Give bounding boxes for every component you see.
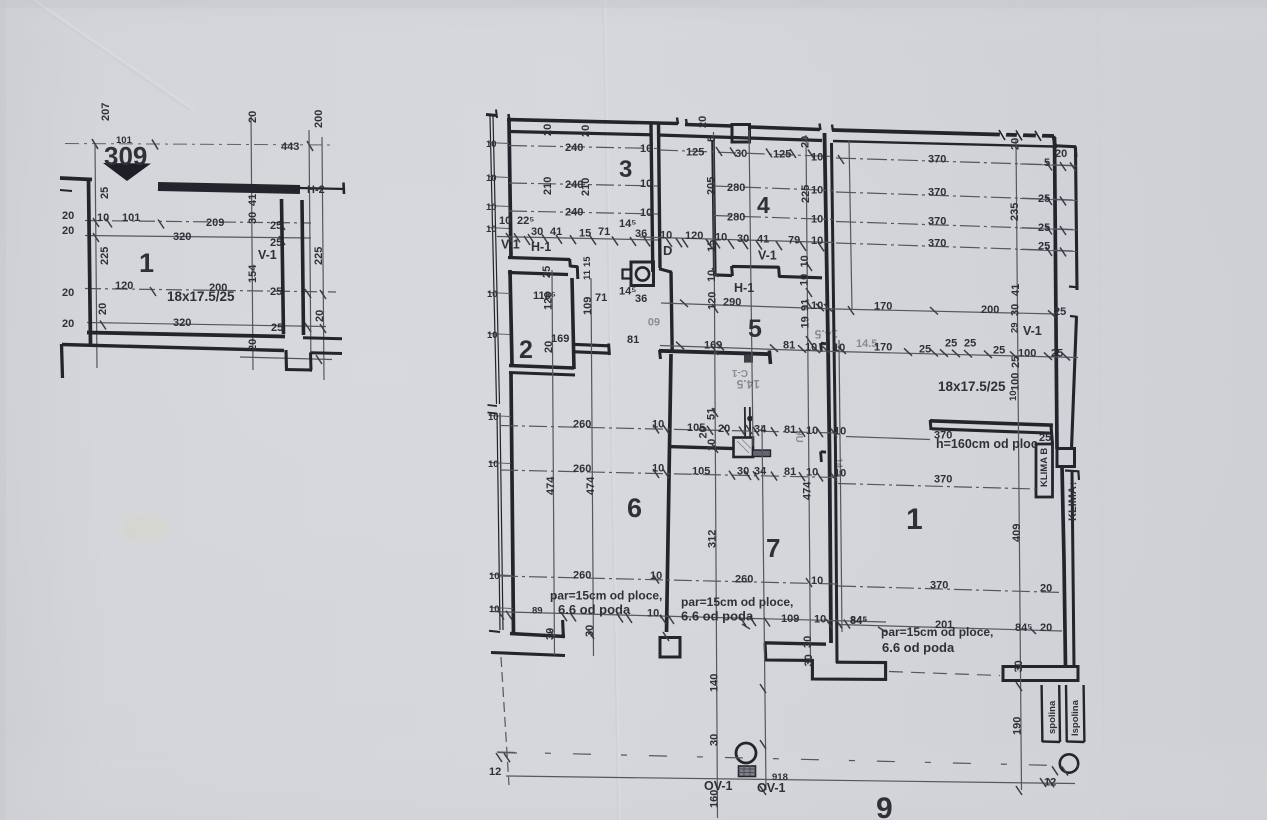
svg-text:18x17.5/25: 18x17.5/25 <box>167 289 235 304</box>
svg-text:14.5: 14.5 <box>814 327 838 341</box>
svg-text:36: 36 <box>635 228 647 240</box>
svg-text:170: 170 <box>874 301 892 313</box>
svg-text:25: 25 <box>993 345 1005 357</box>
svg-text:10,: 10, <box>647 608 662 620</box>
svg-text:280: 280 <box>727 182 745 194</box>
svg-text:10: 10 <box>834 426 846 438</box>
svg-text:spolina: spolina <box>1047 700 1058 734</box>
svg-text:370: 370 <box>928 187 946 199</box>
svg-text:10: 10 <box>811 214 823 226</box>
svg-text:15: 15 <box>579 228 591 240</box>
svg-text:10: 10 <box>486 173 497 184</box>
svg-text:10: 10 <box>652 419 664 431</box>
svg-text:51: 51 <box>706 408 718 420</box>
svg-text:par=15cm od ploce,: par=15cm od ploce, <box>681 595 793 609</box>
svg-text:30: 30 <box>531 226 543 238</box>
svg-text:5: 5 <box>1044 157 1050 169</box>
svg-text:205: 205 <box>706 177 718 195</box>
svg-text:20: 20 <box>698 426 710 438</box>
svg-text:120: 120 <box>115 280 133 292</box>
svg-text:200: 200 <box>981 304 999 316</box>
svg-text:225: 225 <box>313 247 325 265</box>
svg-text:25: 25 <box>1038 222 1050 234</box>
svg-text:240: 240 <box>565 207 583 219</box>
svg-text:20: 20 <box>697 116 709 128</box>
svg-text:25: 25 <box>271 322 283 334</box>
svg-text:370: 370 <box>928 154 946 166</box>
svg-text:20: 20 <box>314 310 326 322</box>
svg-text:105: 105 <box>692 466 710 478</box>
svg-text:10: 10 <box>833 342 845 354</box>
svg-text:34: 34 <box>754 466 767 478</box>
svg-text:312: 312 <box>707 530 719 548</box>
svg-text:320: 320 <box>173 317 191 329</box>
svg-text:474: 474 <box>545 476 557 495</box>
svg-text:370: 370 <box>928 238 946 250</box>
svg-text:25: 25 <box>1051 348 1063 360</box>
svg-text:125: 125 <box>686 147 704 159</box>
svg-text:41: 41 <box>550 226 562 238</box>
svg-text:210: 210 <box>580 178 592 196</box>
svg-text:V-1: V-1 <box>258 248 277 262</box>
svg-text:25: 25 <box>1039 432 1051 444</box>
svg-text:81: 81 <box>784 466 796 478</box>
svg-text:225: 225 <box>800 185 812 203</box>
svg-text:91: 91 <box>800 299 812 311</box>
svg-text:100: 100 <box>1010 373 1022 391</box>
svg-text:C-1: C-1 <box>731 367 748 378</box>
svg-text:190: 190 <box>1012 717 1024 735</box>
svg-text:280: 280 <box>727 212 745 224</box>
svg-text:14.5: 14.5 <box>736 377 760 391</box>
svg-text:443: 443 <box>281 141 299 153</box>
svg-text:30: 30 <box>709 734 721 746</box>
svg-text:10: 10 <box>640 143 652 155</box>
svg-text:10: 10 <box>487 289 498 300</box>
svg-text:10: 10 <box>489 604 500 615</box>
svg-text:1: 1 <box>139 248 154 278</box>
svg-text:20: 20 <box>580 125 592 137</box>
svg-text:10: 10 <box>488 459 499 470</box>
svg-text:20: 20 <box>62 287 74 299</box>
svg-text:6: 6 <box>627 493 642 523</box>
svg-text:109: 109 <box>781 613 799 625</box>
svg-text:25: 25 <box>99 187 111 199</box>
svg-text:3: 3 <box>619 156 632 183</box>
svg-text:15: 15 <box>706 240 718 252</box>
svg-text:207: 207 <box>100 103 112 121</box>
svg-text:10: 10 <box>640 207 652 219</box>
svg-text:20: 20 <box>1040 583 1052 595</box>
svg-text:30: 30 <box>247 212 259 224</box>
svg-text:KLIMA↓: KLIMA↓ <box>1067 481 1079 521</box>
svg-text:2: 2 <box>519 336 533 364</box>
svg-text:120: 120 <box>707 292 719 310</box>
svg-text:84⁵: 84⁵ <box>1015 622 1032 634</box>
svg-text:15: 15 <box>582 256 593 267</box>
svg-text:10: 10 <box>650 570 662 582</box>
svg-text:20: 20 <box>247 111 259 123</box>
svg-text:10: 10 <box>487 330 498 341</box>
svg-text:H-1: H-1 <box>734 281 754 295</box>
svg-text:10: 10 <box>811 185 823 197</box>
svg-text:10: 10 <box>1008 390 1019 401</box>
svg-text:370: 370 <box>934 474 952 486</box>
svg-text:81: 81 <box>627 334 639 346</box>
svg-text:10: 10 <box>486 202 497 213</box>
svg-text:12: 12 <box>1044 777 1056 789</box>
svg-text:260: 260 <box>573 419 591 431</box>
svg-text:V-1: V-1 <box>758 249 777 263</box>
svg-text:20: 20 <box>800 136 812 148</box>
svg-text:OV-1: OV-1 <box>704 779 733 793</box>
svg-text:11: 11 <box>582 269 593 280</box>
svg-text:10: 10 <box>660 230 672 242</box>
svg-text:H-2: H-2 <box>307 184 325 196</box>
svg-text:20: 20 <box>97 303 109 315</box>
svg-text:240: 240 <box>565 142 583 154</box>
svg-text:41: 41 <box>247 194 259 206</box>
svg-text:10: 10 <box>486 224 497 235</box>
svg-text:101: 101 <box>122 212 140 224</box>
svg-text:474: 474 <box>802 481 814 500</box>
svg-text:125: 125 <box>773 149 791 161</box>
svg-text:10: 10 <box>814 614 826 626</box>
svg-text:84⁵: 84⁵ <box>850 615 867 627</box>
svg-text:71: 71 <box>595 292 607 304</box>
svg-text:KLIMA B: KLIMA B <box>1039 448 1050 487</box>
svg-text:200: 200 <box>313 110 325 128</box>
svg-text:260: 260 <box>573 570 591 582</box>
svg-text:30: 30 <box>584 625 596 637</box>
svg-text:71: 71 <box>598 226 610 238</box>
svg-text:10: 10 <box>799 274 811 286</box>
svg-text:41: 41 <box>1010 284 1022 296</box>
svg-text:409: 409 <box>1011 524 1023 542</box>
svg-text:19: 19 <box>800 316 812 328</box>
svg-text:25: 25 <box>1038 241 1050 253</box>
svg-text:10: 10 <box>805 342 817 354</box>
svg-text:34: 34 <box>754 424 767 436</box>
svg-text:25: 25 <box>1010 356 1022 368</box>
svg-text:30: 30 <box>735 148 747 160</box>
svg-text:20: 20 <box>1040 622 1052 634</box>
svg-text:14⁵: 14⁵ <box>619 218 636 230</box>
svg-text:OV-1: OV-1 <box>757 781 786 795</box>
svg-text:5: 5 <box>748 315 762 343</box>
svg-text:10: 10 <box>811 300 823 312</box>
svg-text:12: 12 <box>489 766 501 778</box>
svg-text:D: D <box>663 243 672 258</box>
svg-text:169: 169 <box>704 340 722 352</box>
svg-text:81: 81 <box>783 340 795 352</box>
svg-text:10: 10 <box>806 425 818 437</box>
svg-text:20: 20 <box>718 423 730 435</box>
svg-text:14⁵: 14⁵ <box>619 286 636 298</box>
svg-text:10: 10 <box>499 215 511 227</box>
svg-text:10: 10 <box>488 412 499 423</box>
svg-text:235: 235 <box>1009 203 1021 221</box>
svg-text:25: 25 <box>270 220 282 232</box>
svg-text:320: 320 <box>173 231 191 243</box>
svg-text:10: 10 <box>811 152 823 164</box>
svg-text:10: 10 <box>652 463 664 475</box>
svg-text:25: 25 <box>945 338 957 350</box>
svg-text:30: 30 <box>737 466 749 478</box>
svg-text:25: 25 <box>919 344 931 356</box>
svg-text:225: 225 <box>99 247 111 265</box>
svg-text:10: 10 <box>799 255 811 267</box>
svg-text:10: 10 <box>811 575 823 587</box>
svg-text:30: 30 <box>737 233 749 245</box>
svg-text:20: 20 <box>62 225 74 237</box>
svg-text:260: 260 <box>573 463 591 475</box>
svg-text:109: 109 <box>582 297 594 315</box>
svg-text:30: 30 <box>803 654 815 666</box>
svg-text:par=15cm od ploce,: par=15cm od ploce, <box>881 625 993 639</box>
svg-text:25: 25 <box>541 266 553 278</box>
svg-text:30: 30 <box>1010 304 1022 316</box>
svg-text:4: 4 <box>757 192 770 218</box>
svg-text:10: 10 <box>806 467 818 479</box>
svg-text:309: 309 <box>104 141 147 171</box>
svg-text:10: 10 <box>640 178 652 190</box>
svg-text:10: 10 <box>706 439 718 451</box>
svg-text:5: 5 <box>706 136 718 142</box>
svg-text:29: 29 <box>1010 322 1021 333</box>
svg-text:H-1: H-1 <box>531 240 551 254</box>
svg-text:10: 10 <box>489 571 500 582</box>
svg-text:30: 30 <box>1013 660 1025 672</box>
svg-text:18x17.5/25: 18x17.5/25 <box>938 379 1006 394</box>
svg-text:290: 290 <box>723 297 741 309</box>
svg-text:370: 370 <box>928 216 946 228</box>
svg-text:140: 140 <box>709 674 721 692</box>
svg-text:79: 79 <box>788 235 800 247</box>
svg-text:10: 10 <box>486 139 497 150</box>
svg-text:30: 30 <box>545 628 557 640</box>
svg-text:h=160cm od ploc: h=160cm od ploc <box>936 437 1038 451</box>
svg-text:10: 10 <box>706 270 718 282</box>
svg-text:20: 20 <box>542 124 554 136</box>
svg-text:25: 25 <box>964 338 976 350</box>
svg-text:41: 41 <box>757 234 769 246</box>
svg-text:par=15cm od ploce,: par=15cm od ploce, <box>550 589 662 603</box>
svg-text:1: 1 <box>906 503 923 536</box>
svg-text:6.6 od poda: 6.6 od poda <box>681 609 754 624</box>
svg-text:25: 25 <box>270 286 282 298</box>
svg-text:120: 120 <box>543 292 555 310</box>
svg-text:89: 89 <box>532 606 543 617</box>
svg-text:10: 10 <box>97 212 109 224</box>
svg-text:20: 20 <box>543 341 555 353</box>
svg-text:30: 30 <box>802 636 814 648</box>
svg-text:25: 25 <box>1038 193 1050 205</box>
svg-text:6.6 od poda: 6.6 od poda <box>558 602 631 617</box>
svg-text:20: 20 <box>1010 138 1022 150</box>
svg-text:10: 10 <box>811 235 823 247</box>
svg-text:170: 170 <box>874 342 892 354</box>
svg-text:25: 25 <box>1054 306 1066 318</box>
svg-text:20: 20 <box>247 339 259 351</box>
svg-text:474: 474 <box>585 476 597 495</box>
svg-text:370: 370 <box>930 580 948 592</box>
svg-text:918: 918 <box>772 772 788 783</box>
svg-text:20: 20 <box>62 318 74 330</box>
svg-text:36: 36 <box>635 293 647 305</box>
svg-text:Ispolina: Ispolina <box>1070 699 1081 736</box>
svg-text:10: 10 <box>834 468 846 480</box>
svg-text:210: 210 <box>542 177 554 195</box>
svg-text:260: 260 <box>735 574 753 586</box>
svg-text:20: 20 <box>1055 148 1067 160</box>
svg-text:7: 7 <box>766 533 780 563</box>
svg-text:81: 81 <box>784 424 796 436</box>
svg-text:209: 209 <box>206 217 224 229</box>
svg-text:60: 60 <box>648 315 660 327</box>
svg-text:20: 20 <box>62 210 74 222</box>
svg-text:9: 9 <box>876 792 893 820</box>
svg-text:120: 120 <box>685 230 703 242</box>
svg-text:V-1: V-1 <box>501 238 520 252</box>
svg-text:6.6 od poda: 6.6 od poda <box>882 640 955 655</box>
svg-text:154: 154 <box>247 264 259 283</box>
svg-text:V-1: V-1 <box>1023 324 1042 338</box>
